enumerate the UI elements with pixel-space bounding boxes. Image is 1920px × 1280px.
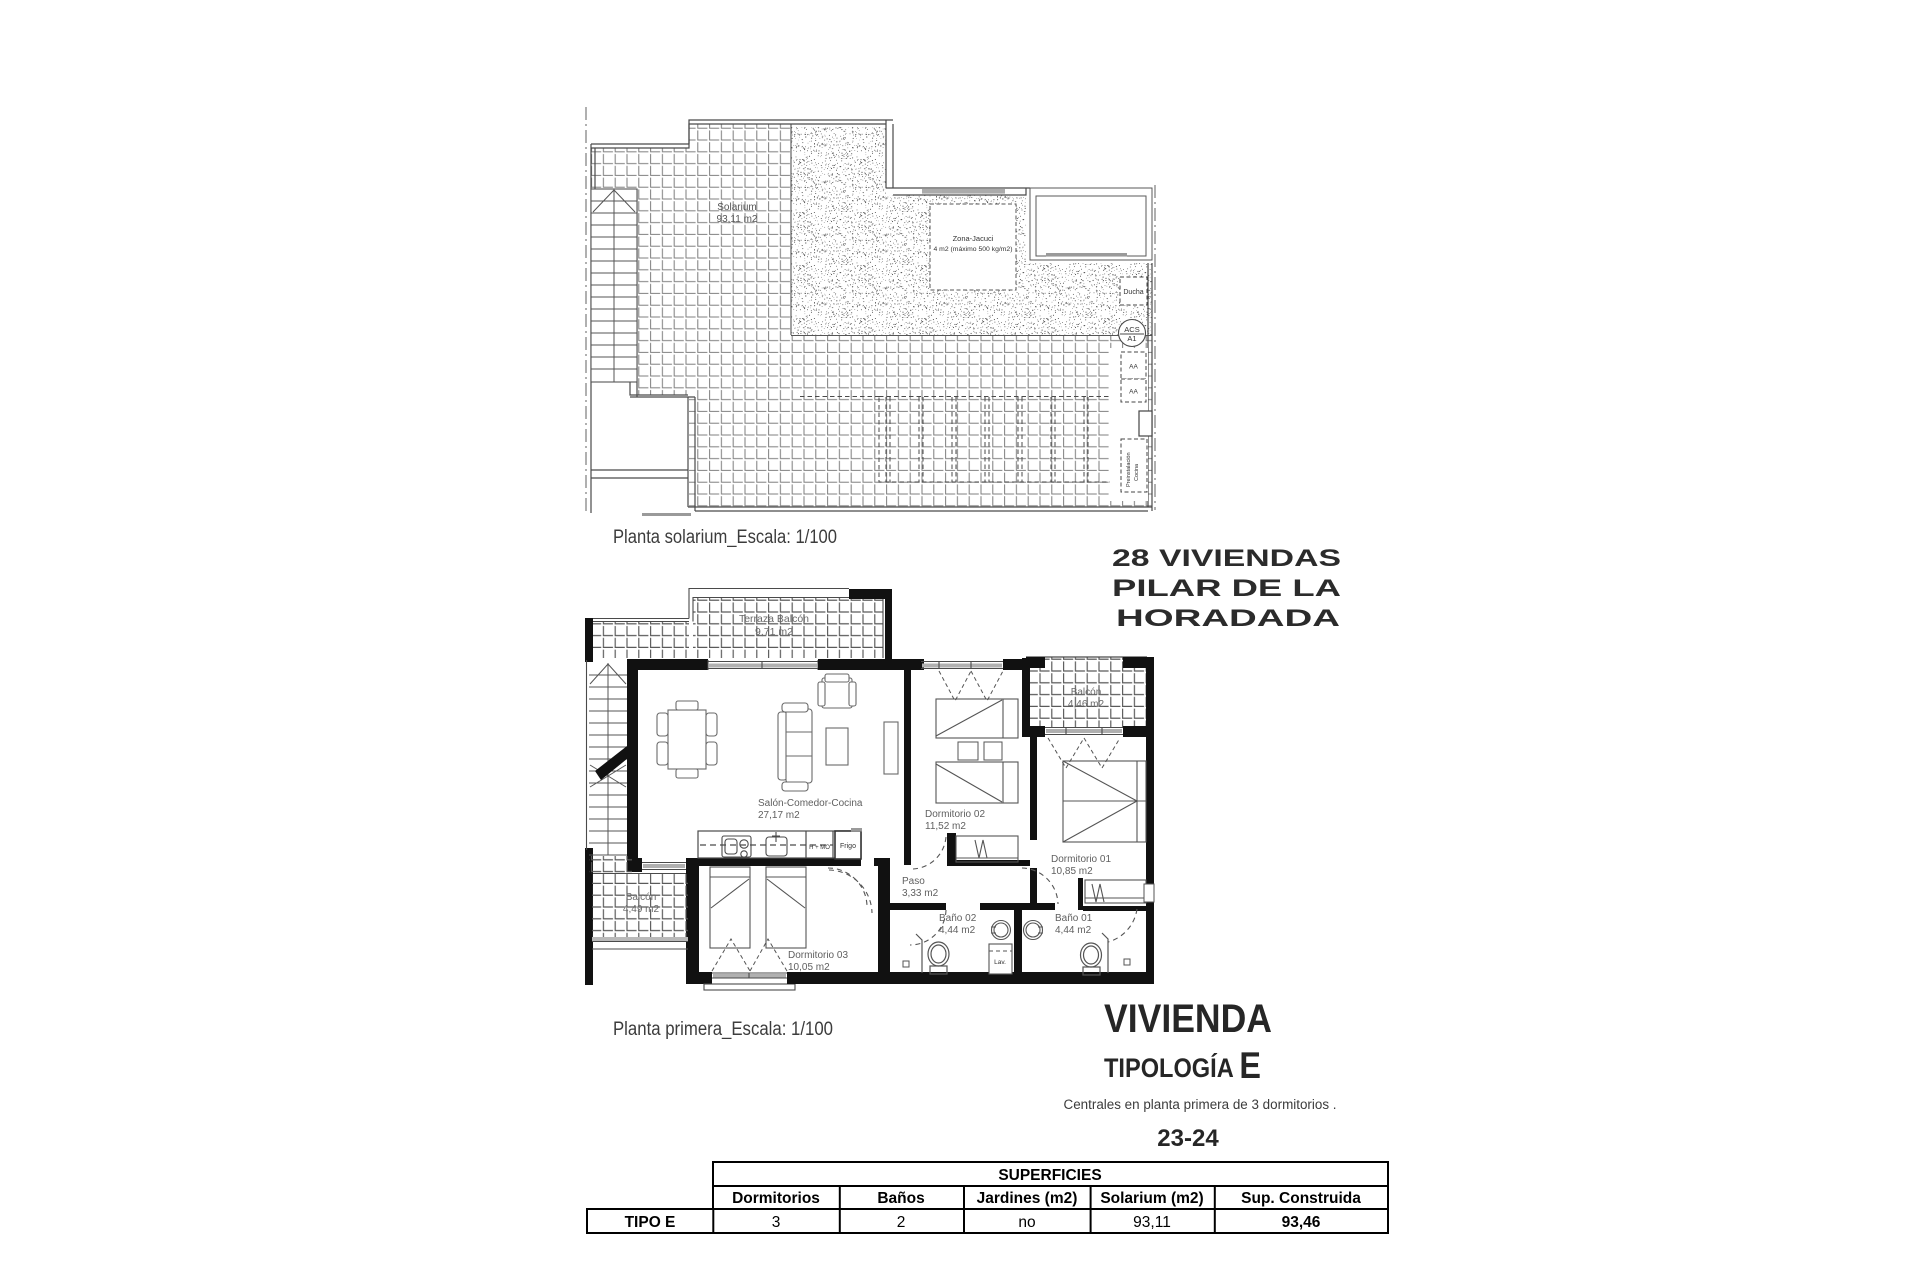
svg-text:Baño 02: Baño 02 <box>939 913 977 924</box>
svg-text:3: 3 <box>772 1214 781 1231</box>
svg-text:AA: AA <box>1129 364 1138 371</box>
svg-text:Paso: Paso <box>902 876 925 887</box>
svg-text:PILAR DE LA: PILAR DE LA <box>1112 575 1341 602</box>
svg-text:SUPERFICIES: SUPERFICIES <box>998 1167 1101 1184</box>
svg-text:9,71 m2: 9,71 m2 <box>755 626 793 638</box>
svg-text:Balcón: Balcón <box>1071 687 1102 698</box>
svg-text:4,44 m2: 4,44 m2 <box>939 925 976 936</box>
svg-text:TIPOLOGÍA E: TIPOLOGÍA E <box>1104 1045 1261 1086</box>
svg-text:Balcón: Balcón <box>626 892 657 903</box>
svg-text:Dormitorio 01: Dormitorio 01 <box>1051 854 1111 865</box>
svg-text:11,52 m2: 11,52 m2 <box>925 821 966 832</box>
svg-text:Terraza Balcón: Terraza Balcón <box>739 613 809 625</box>
svg-text:Solarium: Solarium <box>717 202 756 213</box>
svg-text:93,46: 93,46 <box>1282 1214 1321 1231</box>
svg-text:AA: AA <box>1129 389 1138 396</box>
svg-text:TIPO E: TIPO E <box>625 1214 676 1231</box>
svg-text:Salón-Comedor-Cocina: Salón-Comedor-Cocina <box>758 798 863 809</box>
svg-text:no: no <box>1018 1214 1035 1231</box>
svg-text:2: 2 <box>897 1214 906 1231</box>
svg-text:4,49 m2: 4,49 m2 <box>623 904 660 915</box>
svg-text:Solarium (m2): Solarium (m2) <box>1100 1190 1203 1207</box>
svg-text:Ducha: Ducha <box>1123 289 1143 296</box>
svg-text:HORADADA: HORADADA <box>1116 605 1340 632</box>
svg-text:23-24: 23-24 <box>1157 1125 1219 1152</box>
svg-text:4 m2 (máximo 500 kg/m2): 4 m2 (máximo 500 kg/m2) <box>934 246 1013 253</box>
svg-text:93,11 m2: 93,11 m2 <box>717 214 758 225</box>
svg-text:Zona-Jacuci: Zona-Jacuci <box>953 234 994 243</box>
svg-text:Planta primera_Escala: 1/100: Planta primera_Escala: 1/100 <box>613 1019 833 1040</box>
svg-text:Sup. Construida: Sup. Construida <box>1241 1190 1361 1207</box>
svg-text:Preinstalación: Preinstalación <box>1126 452 1132 487</box>
svg-text:ACS: ACS <box>1124 325 1139 334</box>
svg-text:10,05 m2: 10,05 m2 <box>788 962 830 973</box>
svg-text:4,46 m2: 4,46 m2 <box>1068 699 1105 710</box>
svg-text:Dormitorio 02: Dormitorio 02 <box>925 809 985 820</box>
svg-text:Baños: Baños <box>877 1190 924 1207</box>
svg-text:A1: A1 <box>1127 334 1136 343</box>
svg-text:4,44 m2: 4,44 m2 <box>1055 925 1092 936</box>
svg-text:28 VIVIENDAS: 28 VIVIENDAS <box>1112 545 1341 572</box>
svg-text:Dormitorios: Dormitorios <box>732 1190 820 1207</box>
svg-text:Baño 01: Baño 01 <box>1055 913 1093 924</box>
svg-text:Dormitorio 03: Dormitorio 03 <box>788 950 848 961</box>
svg-text:H + MO: H + MO <box>809 845 830 851</box>
svg-text:Cocina: Cocina <box>1134 463 1140 481</box>
svg-text:10,85 m2: 10,85 m2 <box>1051 866 1093 877</box>
svg-text:Planta solarium_Escala: 1/100: Planta solarium_Escala: 1/100 <box>613 527 837 548</box>
svg-text:VIVIENDA: VIVIENDA <box>1104 997 1272 1041</box>
svg-text:Frigo: Frigo <box>840 843 856 850</box>
svg-text:27,17 m2: 27,17 m2 <box>758 810 800 821</box>
svg-text:3,33 m2: 3,33 m2 <box>902 888 939 899</box>
svg-text:93,11: 93,11 <box>1133 1214 1171 1231</box>
svg-text:Centrales en planta primera de: Centrales en planta primera de 3 dormito… <box>1064 1097 1337 1112</box>
svg-text:Jardines (m2): Jardines (m2) <box>977 1190 1078 1207</box>
svg-text:Lav.: Lav. <box>994 959 1006 966</box>
